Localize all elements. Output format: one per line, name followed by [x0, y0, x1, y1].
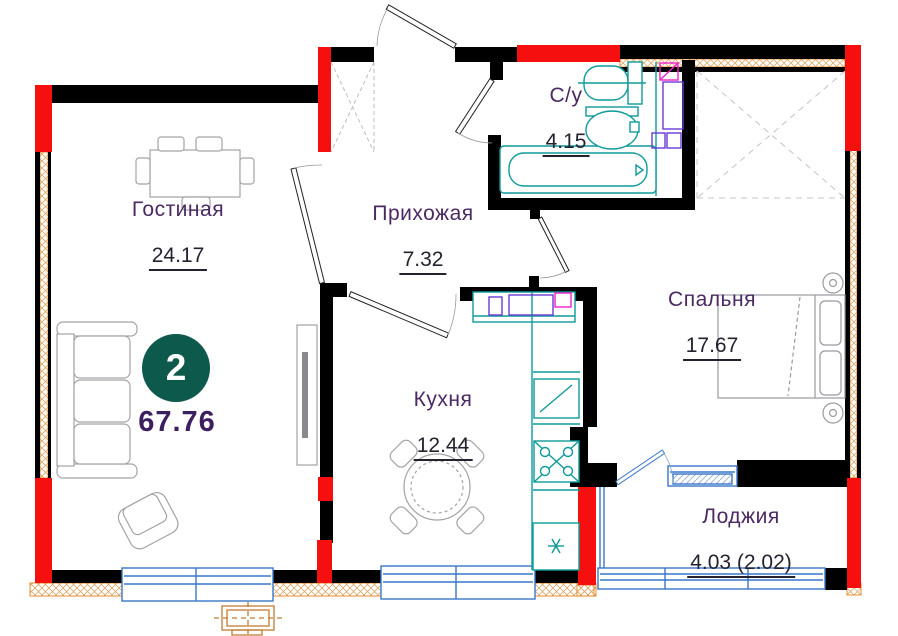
room-area: 24.17	[149, 244, 208, 271]
kitchen-counter	[473, 292, 580, 570]
tv-stand	[297, 325, 317, 465]
room-name: Кухня	[414, 388, 473, 412]
room-label-loggia: Лоджия 4.03 (2.02)	[687, 505, 795, 578]
room-area: 4.03 (2.02)	[687, 551, 795, 578]
room-label-hallway: Прихожая 7.32	[372, 202, 473, 275]
living-room-door	[291, 168, 324, 284]
fridge	[533, 523, 579, 570]
room-area: 12.44	[414, 434, 473, 461]
total-area: 67.76	[138, 406, 216, 439]
tv	[302, 352, 308, 438]
ac-unit	[214, 602, 282, 635]
balcony-door	[616, 450, 665, 485]
room-label-bathroom: С/у 4.15	[543, 84, 590, 157]
room-area: 4.15	[543, 130, 590, 157]
kitchen-door	[349, 292, 449, 338]
bathroom-door	[456, 79, 495, 135]
shaft-dashed-area	[331, 62, 374, 152]
room-name: Лоджия	[687, 505, 795, 529]
room-name: Гостиная	[132, 198, 224, 222]
room-label-kitchen: Кухня 12.44	[414, 388, 473, 461]
wardrobe-dashed-area	[697, 71, 845, 198]
sofa	[57, 322, 137, 478]
sink	[586, 107, 639, 149]
room-label-living: Гостиная 24.17	[132, 198, 224, 271]
room-count-badge: 2	[142, 334, 210, 402]
room-area: 17.67	[683, 334, 742, 361]
room-name: Прихожая	[372, 202, 473, 226]
room-area: 7.32	[400, 248, 447, 275]
room-label-bedroom: Спальня 17.67	[668, 288, 756, 361]
floor-plan: Гостиная 24.17 Прихожая 7.32 С/у 4.15 Сп…	[0, 0, 898, 636]
room-count: 2	[166, 347, 187, 389]
room-name: Спальня	[668, 288, 756, 312]
bedroom-door	[538, 217, 569, 272]
entrance-door	[386, 5, 456, 48]
stove	[534, 441, 579, 482]
room-name: С/у	[543, 84, 590, 108]
armchair	[115, 489, 182, 552]
